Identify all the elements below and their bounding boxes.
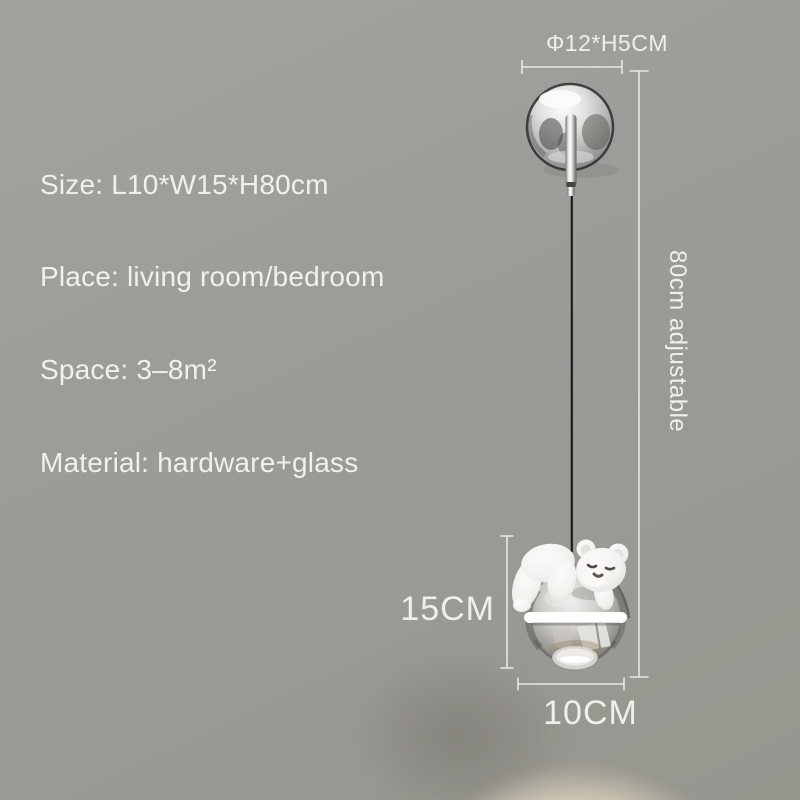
- diameter-dimension-line: [522, 60, 622, 74]
- product-showcase: Size: L10*W15*H80cm Place: living room/b…: [0, 0, 800, 800]
- ball-height-dimension-line: [501, 536, 514, 668]
- ball-diameter-dimension-line: [518, 678, 624, 691]
- bear-eye-right: [606, 568, 614, 569]
- spec-size: Size: L10*W15*H80cm: [40, 170, 329, 201]
- spec-space: Space: 3–8m²: [40, 355, 217, 386]
- mount-stem: [566, 114, 577, 196]
- spec-material: Material: hardware+glass: [40, 448, 358, 479]
- led-ring: [524, 612, 627, 623]
- ball-height-label: 15CM: [398, 590, 495, 629]
- ball-diameter-label: 10CM: [533, 694, 648, 733]
- height-dimension-label: 80cm adjustable: [663, 250, 691, 462]
- height-dimension-line: [630, 71, 649, 677]
- spec-place: Place: living room/bedroom: [40, 262, 384, 293]
- top-dimension-label: Φ12*H5CM: [528, 30, 668, 57]
